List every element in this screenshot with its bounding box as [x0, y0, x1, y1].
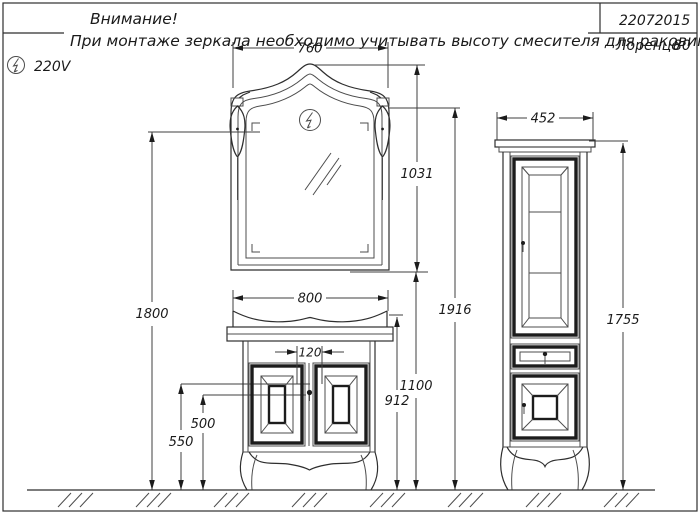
arrowhead: [287, 349, 297, 355]
dim-label-800: 800: [298, 292, 323, 307]
door-frame: [252, 366, 302, 443]
bevel-diagonal: [285, 423, 293, 433]
dim-total-height: 1916: [388, 108, 472, 490]
arrowhead: [233, 295, 243, 301]
dim-label-452: 452: [531, 112, 556, 127]
arrowhead: [178, 480, 184, 490]
hatch-group: [136, 493, 171, 507]
lightning-arrow-tip: [308, 125, 311, 128]
arrowhead: [322, 349, 332, 355]
bevel-diagonal: [261, 423, 269, 433]
door-outline: [511, 156, 579, 338]
arrowhead: [497, 115, 507, 121]
arrowhead: [394, 480, 400, 490]
bevel-diagonal: [557, 384, 568, 396]
technical-drawing-canvas: Внимание! При монтаже зеркала необходимо…: [0, 0, 700, 518]
dim-label-1800: 1800: [135, 307, 168, 322]
power-symbol: 220V: [8, 57, 72, 76]
right-sconce: [370, 92, 390, 200]
dim-knob-height-outer: 550: [169, 384, 310, 490]
door-frame: [316, 366, 366, 443]
ground-hatching: [58, 493, 639, 507]
door-handle: [522, 403, 526, 407]
cabinet-glass-door: [511, 156, 579, 338]
arrowhead: [414, 262, 420, 272]
arrowhead: [620, 480, 626, 490]
door-panel: [269, 386, 285, 423]
door-panel: [533, 396, 557, 419]
mirror-power-symbol: [300, 110, 321, 131]
dim-label-1916: 1916: [438, 303, 471, 318]
leg-outer: [582, 447, 589, 490]
border-rect: [3, 3, 697, 511]
door-outline: [313, 363, 369, 446]
arrowhead: [414, 65, 420, 75]
arrowhead: [413, 480, 419, 490]
dim-label-500: 500: [191, 417, 216, 432]
glass-corner-ornament: [252, 244, 260, 252]
sheet-border: [3, 3, 697, 511]
drawer-knob: [543, 352, 547, 356]
door-bevel: [261, 376, 293, 433]
dim-label-1100: 1100: [399, 379, 432, 394]
glass-corner-ornament: [360, 244, 368, 252]
cornice-lower: [499, 147, 591, 152]
arrowhead: [620, 143, 626, 153]
bevel-diagonal: [325, 423, 333, 433]
arrowhead: [394, 317, 400, 327]
dim-label-550: 550: [169, 435, 194, 450]
tall-cabinet: [495, 140, 595, 490]
dim-label-1031: 1031: [400, 167, 433, 182]
bevel-diagonal: [522, 419, 533, 430]
hatch-group: [448, 493, 483, 507]
model-size: 80: [673, 38, 691, 54]
leg-outer: [240, 452, 247, 490]
bevel-diagonal: [349, 423, 357, 433]
sconce-dot: [381, 128, 384, 131]
backsplash-curve: [233, 311, 387, 322]
arrowhead: [178, 384, 184, 394]
hatch-group: [292, 493, 327, 507]
glass-corner-ornament: [360, 123, 368, 131]
dim-label-1755: 1755: [606, 313, 639, 328]
mirror-glass-edge: [246, 84, 374, 258]
arrowhead: [413, 272, 419, 282]
voltage-label: 220V: [34, 59, 72, 75]
hatch-line: [313, 158, 339, 195]
doc-number: 22072015: [619, 13, 690, 29]
model-name: Лоренцо: [615, 38, 680, 54]
mirror-frame-outer: [231, 64, 389, 270]
bevel-diagonal: [325, 376, 333, 386]
dim-sconce-height: 1800: [135, 132, 260, 490]
bevel-diagonal: [557, 419, 568, 430]
arrowhead: [378, 295, 388, 301]
door-handle: [521, 241, 525, 245]
hatch-line: [327, 165, 341, 185]
cabinet-drawer: [511, 344, 579, 369]
drawing-sheet: Внимание! При монтаже зеркала необходимо…: [0, 0, 700, 518]
dim-label-120: 120: [299, 346, 322, 360]
bevel-diagonal: [561, 167, 568, 175]
dim-cabinet-height: 1755: [589, 141, 640, 490]
arrowhead: [583, 115, 593, 121]
door-bevel: [325, 376, 357, 433]
bevel-diagonal: [522, 318, 529, 327]
bevel-diagonal: [349, 376, 357, 386]
sconce-dot: [236, 128, 239, 131]
hatch-group: [604, 493, 639, 507]
arrowhead: [149, 132, 155, 142]
dim-label-760: 760: [298, 42, 323, 57]
mirror-frame-inner: [238, 74, 382, 265]
lightning-bolt-icon: [14, 59, 19, 73]
dim-cabinet-width: 452: [497, 112, 593, 141]
cornice-top: [495, 140, 595, 147]
dim-label-912: 912: [385, 394, 410, 409]
hatch-group: [58, 493, 93, 507]
door-outline: [511, 373, 579, 441]
apron-curve: [507, 447, 583, 467]
arrowhead: [452, 480, 458, 490]
door-panel: [333, 386, 349, 423]
ground: [27, 490, 655, 507]
arrowhead: [149, 480, 155, 490]
leg-outer: [371, 452, 378, 490]
bevel-diagonal: [561, 318, 568, 327]
lightning-bolt-icon: [307, 113, 313, 129]
note-line1: Внимание!: [90, 10, 178, 28]
vanity: [227, 311, 393, 490]
vanity-right-door: [313, 363, 369, 446]
hatch-group: [526, 493, 561, 507]
hatch-group: [214, 493, 249, 507]
arrowhead: [200, 480, 206, 490]
arrowhead: [452, 108, 458, 118]
lightning-arrow-tip: [14, 69, 17, 72]
mirror-glass-hatching: [305, 153, 341, 195]
hatch-group: [370, 493, 405, 507]
mirror: [230, 64, 390, 270]
bevel-diagonal: [522, 384, 533, 396]
dim-vanity-width: 800: [233, 290, 388, 311]
door-knob: [307, 390, 312, 395]
glass-corner-ornament: [252, 123, 260, 131]
left-sconce: [230, 92, 250, 200]
dim-mirror-bottom-height: 1100: [399, 272, 432, 490]
cabinet-lower-door: [511, 373, 579, 441]
glass-pane: [529, 175, 561, 318]
bevel-diagonal: [522, 167, 529, 175]
leg-outer: [501, 447, 508, 490]
arrowhead: [200, 395, 206, 405]
apron-curve: [249, 452, 370, 470]
